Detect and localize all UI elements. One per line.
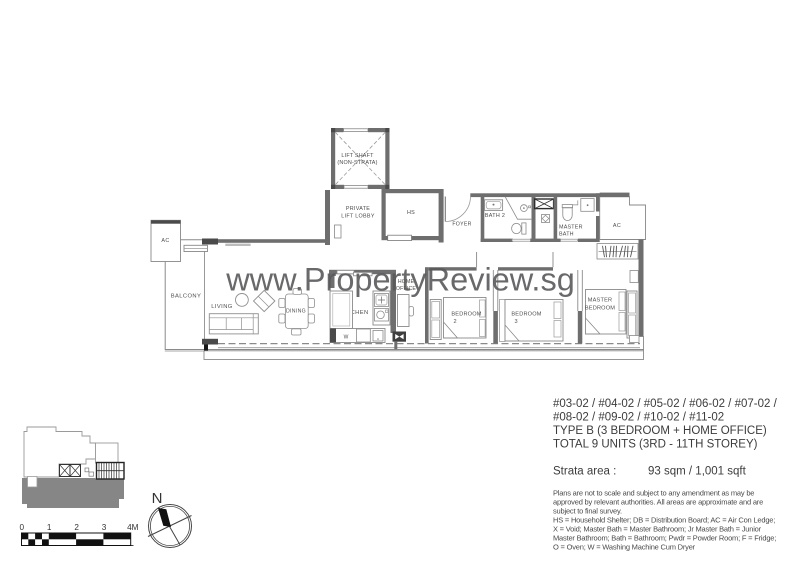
svg-text:(NON-STRATA): (NON-STRATA): [337, 160, 377, 166]
svg-text:HS = Household Shelter; DB = D: HS = Household Shelter; DB = Distributio…: [553, 516, 775, 525]
svg-text:BALCONY: BALCONY: [171, 294, 202, 300]
svg-text:0: 0: [20, 523, 25, 532]
svg-text:Plans are not to scale and sub: Plans are not to scale and subject to an…: [553, 489, 754, 498]
svg-text:www.PropertyReview.sg: www.PropertyReview.sg: [225, 262, 575, 298]
svg-text:BEDROOM: BEDROOM: [451, 312, 481, 318]
svg-text:BATH: BATH: [559, 231, 574, 237]
svg-text:W: W: [344, 335, 349, 341]
svg-text:TYPE B (3 BEDROOM + HOME OFFIC: TYPE B (3 BEDROOM + HOME OFFICE): [553, 425, 767, 437]
svg-text:HS: HS: [407, 210, 415, 216]
svg-text:Master Bathroom; Bath = Bathro: Master Bathroom; Bath = Bathroom; Pwdr =…: [553, 534, 776, 543]
svg-text:2: 2: [74, 523, 79, 532]
svg-text:3: 3: [102, 523, 107, 532]
svg-text:3: 3: [514, 319, 517, 325]
svg-text:DINING: DINING: [286, 309, 306, 315]
svg-text:MASTER: MASTER: [588, 298, 613, 304]
svg-text:subject to final survey.: subject to final survey.: [553, 507, 622, 516]
svg-text:TOTAL 9 UNITS (3RD - 11TH STOR: TOTAL 9 UNITS (3RD - 11TH STOREY): [553, 439, 758, 451]
svg-text:LIFT SHAFT: LIFT SHAFT: [341, 153, 374, 159]
svg-text:2: 2: [453, 319, 456, 325]
svg-text:LIVING: LIVING: [211, 304, 232, 310]
svg-text:#08-02 / #09-02 / #10-02 / #11: #08-02 / #09-02 / #10-02 / #11-02: [553, 412, 724, 424]
svg-text:LIFT LOBBY: LIFT LOBBY: [341, 214, 375, 220]
svg-text:O = Oven; W = Washing Machine: O = Oven; W = Washing Machine Cum Dryer: [553, 543, 696, 552]
svg-text:AC: AC: [613, 223, 621, 229]
svg-text:PRIVATE: PRIVATE: [346, 206, 370, 212]
svg-text:AC: AC: [161, 238, 169, 244]
svg-text:N: N: [152, 490, 163, 507]
svg-text:93 sqm / 1,001 sqft: 93 sqm / 1,001 sqft: [648, 466, 747, 478]
svg-text:X = Void; Master Bath = Master: X = Void; Master Bath = Master Bathroom;…: [553, 525, 762, 534]
svg-text:4M: 4M: [127, 523, 139, 532]
svg-text:FOYER: FOYER: [452, 222, 471, 228]
svg-text:approved by relevant authoriti: approved by relevant authorities. All ar…: [553, 498, 763, 507]
svg-text:BEDROOM: BEDROOM: [585, 306, 615, 312]
svg-text:#03-02 / #04-02 / #05-02 / #06: #03-02 / #04-02 / #05-02 / #06-02 / #07-…: [553, 398, 778, 410]
svg-text:BEDROOM: BEDROOM: [511, 312, 541, 318]
svg-text:Strata area :: Strata area :: [553, 466, 616, 478]
svg-text:1: 1: [47, 523, 52, 532]
svg-text:MASTER: MASTER: [559, 224, 583, 230]
svg-text:BATH 2: BATH 2: [485, 213, 505, 219]
